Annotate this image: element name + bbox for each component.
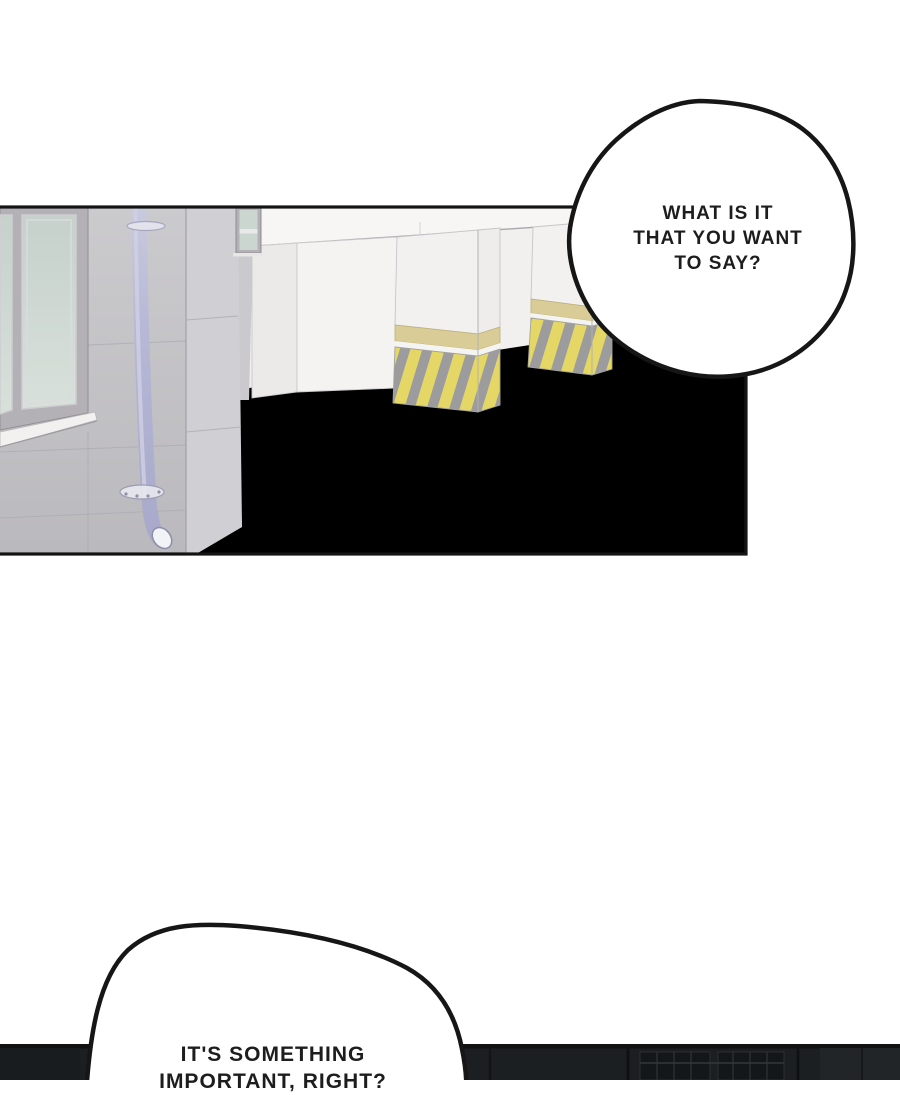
window-pane-right xyxy=(22,215,76,409)
pillar1-upper-side xyxy=(478,228,500,334)
pillar1-hazard-side xyxy=(478,349,500,412)
pillar1-hazard-front xyxy=(393,347,478,412)
pipe-bracket-mid xyxy=(120,485,164,499)
dialogue-line: THAT YOU WANT xyxy=(570,226,866,251)
window xyxy=(0,207,97,447)
speech-bubble-bottom-text: IT'S SOMETHING IMPORTANT, RIGHT? xyxy=(100,1041,446,1095)
dialogue-line: IT'S SOMETHING xyxy=(100,1041,446,1068)
white-pillar xyxy=(252,237,397,398)
small-window-divider xyxy=(240,229,258,234)
white-pillar-left-face xyxy=(252,243,297,398)
speech-bubble-top-text: WHAT IS IT THAT YOU WANT TO SAY? xyxy=(570,201,866,276)
window-pane-left xyxy=(0,215,12,414)
dialogue-line: WHAT IS IT xyxy=(570,201,866,226)
pillar2-hazard-front xyxy=(528,318,592,375)
comic-artwork xyxy=(0,0,900,1080)
small-window xyxy=(233,207,263,257)
dialogue-line: IMPORTANT, RIGHT? xyxy=(100,1068,446,1095)
gray-wall-side xyxy=(186,207,242,560)
hazard-pillar-near xyxy=(393,228,500,412)
pipe-bracket-top xyxy=(127,222,165,231)
dialogue-line: TO SAY? xyxy=(570,251,866,276)
white-pillar-front-face xyxy=(297,237,397,392)
pillar1-upper-front xyxy=(395,230,478,334)
comic-page: WHAT IS IT THAT YOU WANT TO SAY? IT'S SO… xyxy=(0,0,900,1080)
small-window-sill xyxy=(233,253,263,257)
